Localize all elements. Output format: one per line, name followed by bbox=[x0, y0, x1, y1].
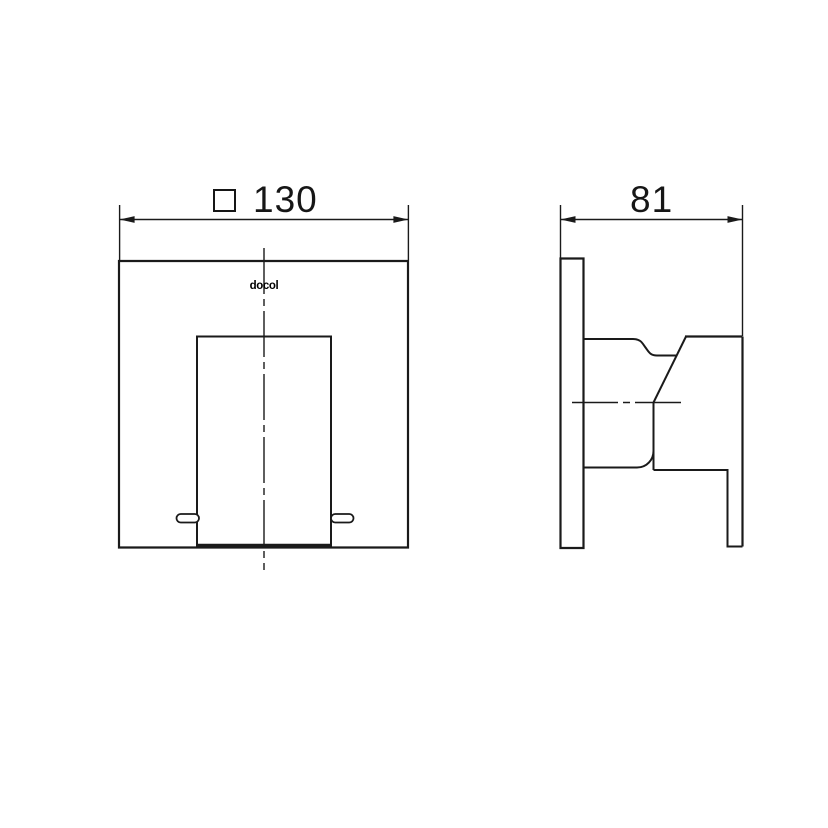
technical-drawing-canvas: 130 81 docol bbox=[0, 0, 828, 828]
side-extension-lines bbox=[561, 205, 743, 336]
front-dimension-label: 130 bbox=[213, 186, 318, 214]
square-symbol-icon bbox=[213, 189, 236, 212]
side-lever-diagonal bbox=[654, 337, 687, 403]
side-neck-bottom bbox=[584, 451, 654, 468]
front-dimension-arrow-left bbox=[120, 216, 135, 223]
side-neck-top bbox=[584, 339, 677, 356]
front-right-slot bbox=[331, 514, 354, 523]
side-dimension-arrow-left bbox=[561, 216, 576, 223]
linework-svg bbox=[0, 0, 828, 828]
side-lever-bottom-leg bbox=[654, 470, 743, 547]
side-dimension-value: 81 bbox=[630, 186, 673, 214]
side-view bbox=[561, 205, 743, 548]
side-plate-outline bbox=[561, 259, 584, 549]
front-dimension-value: 130 bbox=[253, 186, 318, 214]
front-view bbox=[119, 205, 408, 570]
side-dimension-arrow-right bbox=[728, 216, 743, 223]
side-dimension-label: 81 bbox=[630, 186, 673, 214]
front-left-slot bbox=[177, 514, 200, 523]
front-dimension-arrow-right bbox=[393, 216, 408, 223]
brand-logo-text: docol bbox=[250, 280, 279, 292]
